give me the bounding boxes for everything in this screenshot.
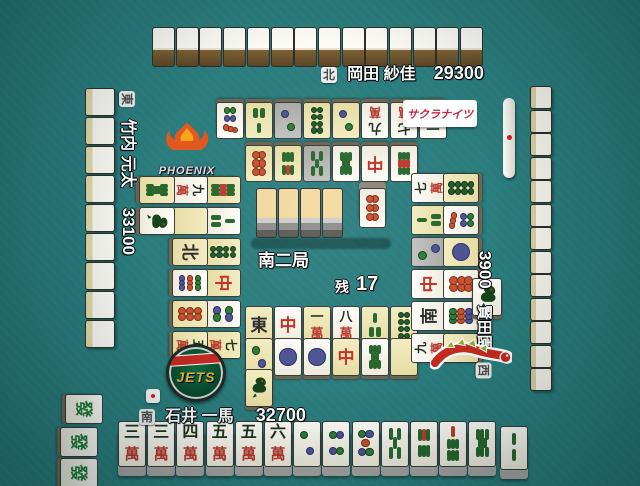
- top-player-score: 29300: [434, 63, 484, 83]
- discard-tile: 北: [172, 238, 208, 266]
- top-seat-badge: 北: [321, 67, 337, 83]
- discard-tile: [245, 145, 273, 182]
- hand-tile[interactable]: 六萬: [264, 421, 292, 467]
- discard-tile: [205, 238, 241, 266]
- wall-tile: [530, 345, 552, 368]
- wall-tile: [530, 227, 552, 250]
- dragon-icon: [430, 333, 512, 379]
- jets-logo-text: JETS: [176, 369, 215, 385]
- wall-tile: [85, 204, 115, 232]
- bottom-player-info: 南 石井 一馬 32700: [139, 402, 306, 426]
- wall-tile: [199, 27, 222, 67]
- discard-tile: [172, 207, 208, 235]
- jets-logo-band: [169, 352, 224, 367]
- discard-tile: [274, 102, 302, 139]
- phoenix-logo: PHOENIX: [150, 120, 224, 182]
- wall-tile: [223, 27, 246, 67]
- discard-tile: [205, 300, 241, 328]
- discard-tile: [245, 102, 273, 139]
- riichi-stick: [503, 98, 515, 178]
- meld-tile: 發: [60, 458, 98, 486]
- left-seat-badge: 東: [119, 91, 135, 107]
- wall-tile: [85, 320, 115, 348]
- phoenix-flame-icon: [156, 147, 218, 164]
- wall-tile: [247, 27, 270, 67]
- top-player-info: 北 岡田 紗佳 29300: [321, 60, 484, 84]
- bottom-player-name: 石井 一馬: [165, 408, 233, 425]
- discard-tile: 南: [411, 301, 447, 331]
- right-player-score: 3900: [476, 251, 495, 289]
- wall-tile: [530, 251, 552, 274]
- wall-tile: [294, 27, 317, 67]
- discard-tile: [172, 300, 208, 328]
- wall-tile: [85, 233, 115, 261]
- discard-tile: 中: [205, 269, 241, 297]
- dragon-logo: [430, 333, 512, 379]
- discard-tile: [443, 205, 479, 235]
- dead-wall-tile: [300, 188, 321, 238]
- wall-tile: [85, 175, 115, 203]
- discard-tile: [411, 205, 447, 235]
- dead-wall-tile: [322, 188, 343, 238]
- left-player-info: 東 竹内 元太 33100: [118, 58, 142, 288]
- meld-tile: 發: [60, 427, 98, 457]
- remaining-label: 残: [335, 277, 349, 297]
- dora-indicator-tile: [359, 188, 386, 228]
- stick-marker: [146, 389, 160, 403]
- wall-tile: [530, 321, 552, 344]
- discard-tile: [443, 173, 479, 203]
- wall-tile: [530, 274, 552, 297]
- hand-tile[interactable]: [381, 421, 409, 467]
- discard-tile: [205, 207, 241, 235]
- wall-tile: [176, 27, 199, 67]
- hand-tile[interactable]: [410, 421, 438, 467]
- hand-tile[interactable]: 四萬: [176, 421, 204, 467]
- wall-tile: [85, 262, 115, 290]
- discard-tile: [303, 102, 331, 139]
- discard-tile: 中: [332, 338, 360, 376]
- hand-tile[interactable]: 五萬: [206, 421, 234, 467]
- hand-tile[interactable]: [468, 421, 496, 467]
- discard-tile: [303, 338, 331, 376]
- discard-tile: [139, 207, 175, 235]
- wall-tile: [530, 86, 552, 109]
- wall-tile: [152, 27, 175, 67]
- discard-tile: 中: [411, 269, 447, 299]
- wall-tile: [530, 157, 552, 180]
- meld-tile: 發: [65, 394, 103, 424]
- hand-tile[interactable]: 三萬: [118, 421, 146, 467]
- wall-tile: [85, 291, 115, 319]
- left-player-name: 竹内 元太: [119, 119, 136, 187]
- discard-tile: 七萬: [411, 173, 447, 203]
- top-player-name: 岡田 紗佳: [347, 66, 415, 83]
- hand-tile[interactable]: [439, 421, 467, 467]
- wall-tile: [530, 180, 552, 203]
- wall-tile: [530, 110, 552, 133]
- wall-tile: [85, 117, 115, 145]
- wall-tile: [530, 368, 552, 391]
- wall-tile: [530, 298, 552, 321]
- discard-tile: [332, 145, 360, 182]
- discard-tile: [172, 269, 208, 297]
- discard-tile: [274, 338, 302, 376]
- wall-tile: [271, 27, 294, 67]
- discard-tile: [411, 237, 447, 267]
- hand-tile[interactable]: [322, 421, 350, 467]
- wall-tile: [530, 133, 552, 156]
- discard-tile: 中: [361, 145, 389, 182]
- jets-logo: JETS: [166, 344, 226, 402]
- discard-tile: [361, 338, 389, 376]
- hand-tile[interactable]: 五萬: [235, 421, 263, 467]
- phoenix-logo-text: PHOENIX: [150, 165, 224, 177]
- mahjong-table: 中九萬七萬一萬東中一萬八萬中中七萬九萬北五萬七萬中南九萬七萬發發發三萬三萬四萬五…: [0, 0, 640, 486]
- round-label: 南二局: [258, 246, 309, 271]
- hand-tile[interactable]: 三萬: [147, 421, 175, 467]
- wall-tile: [530, 204, 552, 227]
- remaining-count: 17: [356, 273, 378, 296]
- dead-wall-tile: [256, 188, 277, 238]
- hand-tile[interactable]: [352, 421, 380, 467]
- dead-wall-tile: [278, 188, 299, 238]
- wall-tile: [85, 88, 115, 116]
- sakura-knights-logo: サクラナイツ: [403, 100, 477, 127]
- sakura-knights-logo-text: サクラナイツ: [407, 106, 473, 122]
- discard-tile: [332, 102, 360, 139]
- hand-tile[interactable]: [293, 421, 321, 467]
- discard-tile: [274, 145, 302, 182]
- left-player-score: 33100: [119, 208, 138, 255]
- bottom-player-score: 32700: [256, 405, 306, 425]
- bottom-seat-badge: 南: [139, 409, 155, 425]
- discard-tile: 九萬: [361, 102, 389, 139]
- drawn-tile[interactable]: [500, 426, 528, 470]
- discard-tile: [303, 145, 331, 182]
- wall-tile: [85, 146, 115, 174]
